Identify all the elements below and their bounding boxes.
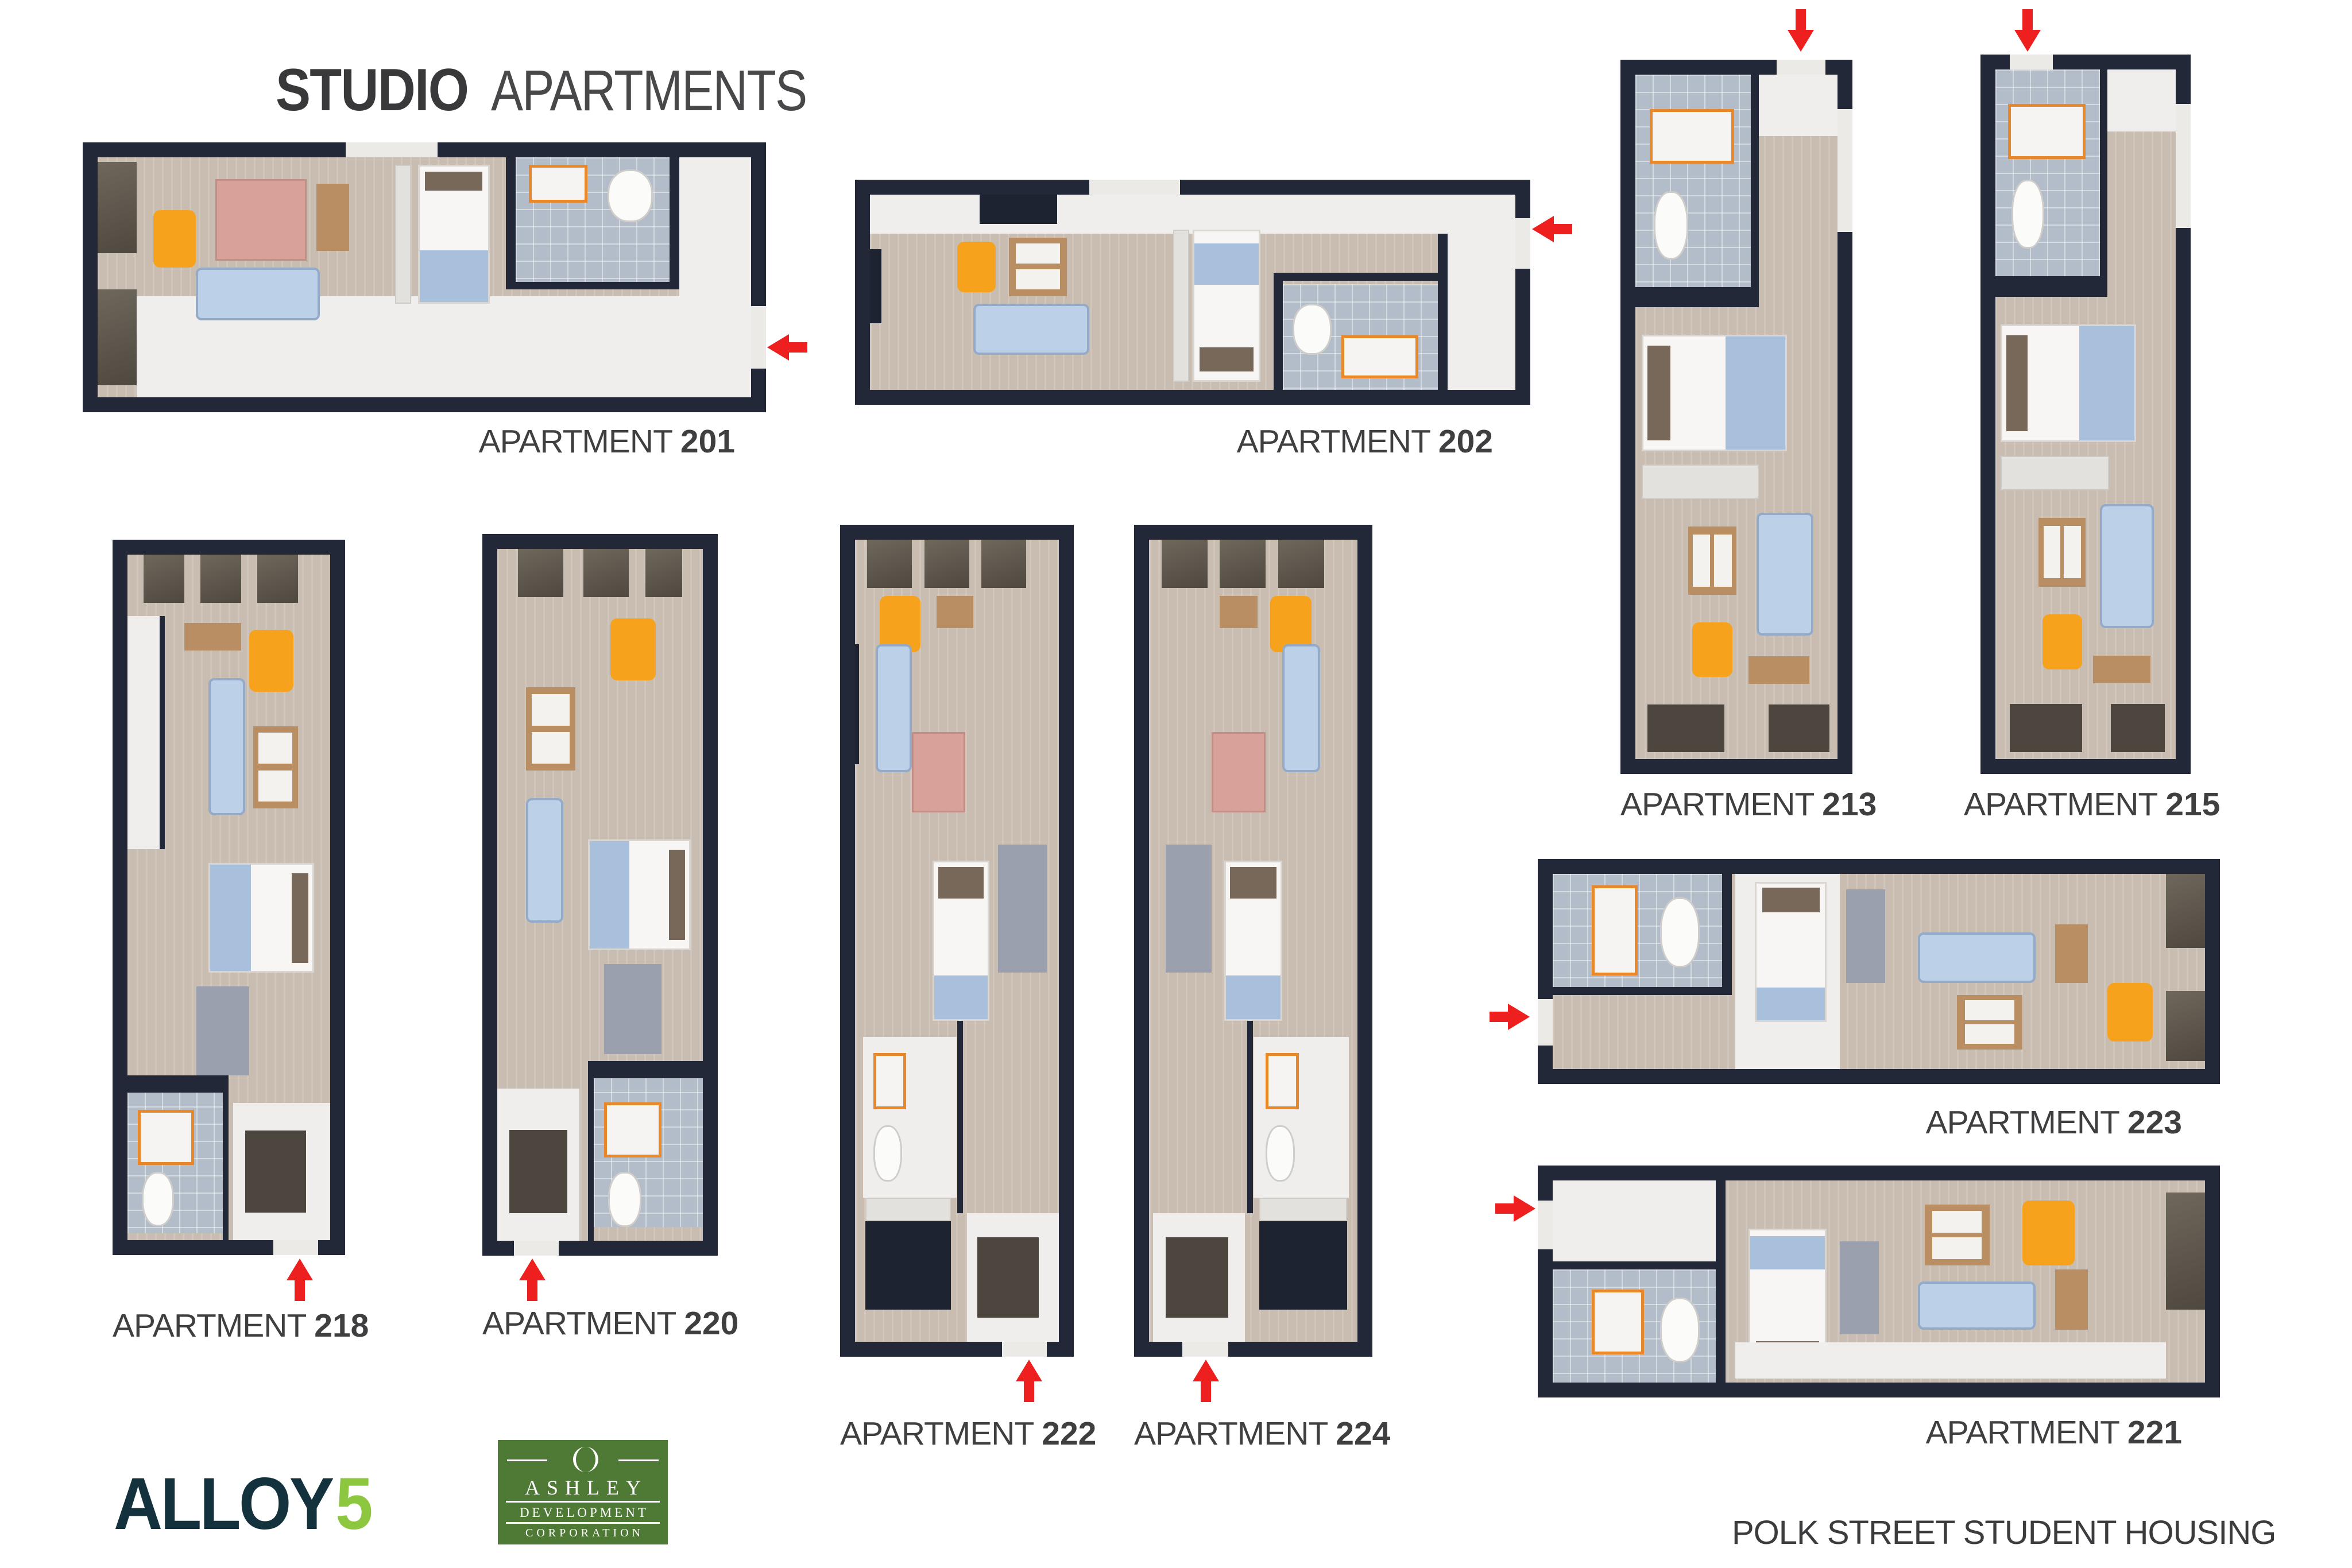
lounge-chair	[2107, 983, 2153, 1042]
blanket	[1757, 988, 1825, 1020]
sofa	[876, 644, 912, 773]
table-plate	[1965, 1000, 2014, 1020]
ashley-logo-subtitle: DEVELOPMENT	[498, 1505, 668, 1520]
apartment-label-prefix: APARTMENT	[1237, 423, 1430, 460]
kitchen-cabinets	[1259, 1221, 1347, 1310]
bathtub	[2008, 104, 2086, 159]
entry-arrow-213	[1788, 9, 1814, 52]
lounge-chair	[249, 630, 294, 691]
sofa	[2100, 504, 2154, 628]
entry-corridor-floor	[1448, 195, 1515, 390]
entry-arrow-202	[1532, 216, 1573, 242]
pillow	[938, 867, 983, 899]
kitchen-counter	[2001, 456, 2109, 490]
white-floor	[127, 616, 160, 849]
entry-door-gap	[1515, 218, 1530, 269]
apartment-label-223: APARTMENT223	[1837, 1104, 2182, 1141]
table-plate	[1016, 269, 1060, 289]
interior-wall	[588, 1061, 594, 1241]
rug	[977, 1237, 1039, 1318]
blanket	[1726, 336, 1785, 450]
title-studio: STUDIO	[276, 56, 468, 125]
interior-wall	[506, 157, 516, 289]
bed	[1193, 230, 1260, 382]
bed	[2001, 324, 2136, 442]
interior-wall	[1751, 75, 1759, 307]
arrow-head	[519, 1259, 546, 1280]
dining-table	[1212, 732, 1266, 812]
rug	[1166, 1237, 1228, 1318]
pillow	[1230, 867, 1276, 899]
page-title: STUDIO APARTMENTS	[276, 56, 867, 125]
bathroom-sink	[529, 165, 587, 203]
entry-door-gap	[2010, 55, 2053, 69]
apartment-label-prefix: APARTMENT	[479, 423, 672, 460]
toilet	[142, 1172, 174, 1227]
apartment-label-213: APARTMENT213	[1620, 785, 1852, 823]
side-table	[1220, 596, 1257, 628]
entry-arrow-215	[2014, 9, 2041, 52]
entry-door-gap	[1777, 60, 1825, 75]
arrow-shaft	[1796, 9, 1806, 31]
dining-table	[1688, 526, 1736, 595]
apartment-label-215: APARTMENT215	[1964, 785, 2205, 823]
interior-wall	[670, 157, 679, 289]
arrow-shaft	[1201, 1380, 1211, 1402]
toilet	[2011, 180, 2044, 249]
blanket	[1226, 975, 1281, 1020]
dining-table	[1009, 238, 1067, 296]
wardrobe	[1846, 889, 1885, 983]
sofa	[196, 268, 320, 320]
arrow-head	[287, 1259, 313, 1280]
table-plate	[1932, 1237, 1982, 1259]
apartment-label-218: APARTMENT218	[113, 1307, 345, 1345]
ashley-development-logo: ASHLEY DEVELOPMENT CORPORATION	[498, 1440, 668, 1544]
bathroom-sink	[1266, 1053, 1299, 1109]
toilet	[873, 1125, 902, 1182]
entry-floor	[1553, 1180, 1716, 1261]
desk	[316, 184, 349, 251]
interior-wall	[1716, 1180, 1726, 1383]
dining-table	[215, 179, 307, 261]
table-plate	[258, 733, 292, 764]
ashley-logo-title: ASHLEY	[498, 1476, 668, 1500]
toilet	[1293, 304, 1331, 354]
blanket	[1194, 243, 1259, 285]
arrow-shaft	[1553, 224, 1572, 234]
window-glazing	[1220, 540, 1266, 588]
entry-arrow-221	[1494, 1195, 1535, 1222]
blanket	[420, 250, 488, 302]
table-plate	[1714, 535, 1731, 587]
bed	[588, 839, 691, 950]
window-glazing	[98, 289, 137, 385]
bathroom-tile-floor	[1995, 69, 2100, 276]
kitchen-counter	[865, 1198, 951, 1222]
kitchen-counter	[1259, 1198, 1347, 1222]
interior-wall	[1274, 273, 1283, 390]
entry-door-gap	[1538, 999, 1553, 1046]
table-plate	[2064, 526, 2080, 578]
lounge-chair	[1270, 596, 1312, 652]
floorplan-apartment-221	[1538, 1166, 2220, 1397]
interior-wall	[1247, 1021, 1254, 1213]
blanket	[210, 865, 251, 971]
window-glazing	[257, 555, 298, 603]
interior-wall	[2100, 69, 2107, 297]
bed	[933, 861, 989, 1021]
interior-wall	[957, 1021, 964, 1213]
window-glazing	[924, 540, 969, 588]
pillow	[1200, 347, 1254, 371]
side-table	[2093, 656, 2150, 683]
skylight-panel	[980, 195, 1057, 224]
dining-table	[2038, 518, 2086, 587]
lounge-chair	[153, 210, 196, 268]
entry-arrow-218	[287, 1259, 313, 1301]
bathroom-sink	[1341, 335, 1419, 378]
toilet	[1660, 897, 1699, 967]
pillow	[425, 172, 482, 191]
side-table	[937, 596, 973, 628]
laurel-wreath-row	[498, 1445, 668, 1474]
floorplan-apartment-222	[840, 525, 1074, 1357]
apartment-number: 201	[680, 423, 735, 460]
wardrobe	[604, 964, 661, 1054]
window-glazing	[518, 549, 563, 597]
sofa	[526, 798, 563, 923]
pillow	[669, 850, 685, 940]
interior-wall	[1553, 987, 1722, 995]
blanket	[2079, 326, 2134, 440]
poster-canvas: STUDIO APARTMENTS APARTMENT201	[0, 0, 2352, 1568]
interior-wall	[1635, 287, 1751, 308]
sofa	[973, 304, 1089, 354]
toilet	[1266, 1125, 1295, 1182]
floorplan-apartment-202	[855, 180, 1530, 405]
kitchen-counter	[1642, 464, 1759, 499]
alloy-logo-number: 5	[335, 1463, 371, 1545]
floorplan-apartment-215	[1980, 55, 2191, 774]
tv-screen	[870, 249, 881, 323]
rug	[245, 1130, 306, 1213]
table-plate	[1965, 1024, 2014, 1044]
entry-arrow-220	[519, 1259, 546, 1301]
interior-wall	[223, 1075, 229, 1240]
entry-door-gap	[1538, 1201, 1553, 1249]
window-gap	[1089, 180, 1179, 195]
apartment-number: 222	[1042, 1415, 1096, 1452]
alloy-logo-text: ALLOY	[114, 1463, 332, 1545]
entry-door-gap	[751, 306, 766, 369]
arrow-shaft	[1490, 1012, 1509, 1022]
entry-arrow-222	[1016, 1360, 1042, 1402]
blanket	[1750, 1236, 1825, 1269]
window-glazing	[645, 549, 682, 597]
entry-door-gap	[273, 1240, 318, 1255]
apartment-label-prefix: APARTMENT	[1134, 1415, 1328, 1452]
bed-partition	[395, 165, 411, 304]
apartment-label-202: APARTMENT202	[1148, 423, 1493, 460]
floorplan-apartment-224	[1134, 525, 1372, 1357]
apartment-label-220: APARTMENT220	[482, 1304, 718, 1342]
arrow-shaft	[1495, 1203, 1515, 1214]
interior-wall	[1995, 276, 2100, 297]
bathtub	[1592, 885, 1638, 975]
blanket	[934, 975, 988, 1020]
pillow	[292, 873, 308, 962]
lounge-chair	[610, 618, 656, 680]
bathtub	[138, 1110, 195, 1165]
interior-wall	[506, 282, 670, 289]
dining-table	[1925, 1205, 1990, 1265]
sideboard	[2055, 1269, 2088, 1330]
toilet	[608, 1172, 641, 1227]
bathroom-sink	[1592, 1290, 1644, 1354]
apartment-number: 221	[2127, 1414, 2182, 1451]
side-table	[184, 623, 241, 651]
pillow	[1762, 888, 1820, 912]
table-plate	[1932, 1211, 1982, 1233]
floorplan-apartment-201	[83, 142, 766, 412]
apartment-label-224: APARTMENT224	[1134, 1415, 1372, 1453]
rug	[2111, 704, 2165, 752]
ashley-logo-subtitle2: CORPORATION	[498, 1527, 668, 1540]
floorplan-apartment-218	[113, 540, 345, 1255]
dining-table	[526, 687, 575, 771]
blanket	[590, 841, 629, 948]
interior-wall	[1553, 1261, 1716, 1269]
divider-line	[506, 1522, 660, 1524]
divider-line	[618, 1459, 659, 1461]
floorplan-apartment-223	[1538, 859, 2220, 1084]
sofa	[1282, 644, 1320, 773]
interior-wall	[1722, 874, 1732, 995]
lounge-chair	[957, 242, 996, 292]
bed	[208, 863, 314, 973]
rug	[2010, 704, 2082, 752]
apartment-label-prefix: APARTMENT	[1964, 786, 2157, 823]
apartment-label-prefix: APARTMENT	[1926, 1104, 2119, 1141]
arrow-head	[1788, 30, 1814, 52]
rug	[1647, 704, 1724, 752]
table-plate	[1693, 535, 1710, 587]
arrow-shaft	[527, 1279, 537, 1301]
window-glazing	[200, 555, 241, 603]
rug	[509, 1130, 567, 1213]
lounge-chair	[880, 596, 920, 652]
window-glazing	[867, 540, 912, 588]
white-floor	[1735, 1342, 2166, 1379]
apartment-label-prefix: APARTMENT	[1620, 786, 1814, 823]
entry-floor	[2107, 69, 2176, 131]
arrow-shaft	[788, 342, 807, 353]
window-glazing	[583, 549, 629, 597]
window-glazing	[2166, 991, 2205, 1061]
arrow-shaft	[1024, 1380, 1034, 1402]
pillow	[2006, 335, 2028, 431]
apartment-number: 213	[1822, 786, 1877, 823]
entry-door-gap	[1002, 1342, 1047, 1357]
entry-door-gap	[514, 1241, 559, 1256]
entry-arrow-201	[767, 334, 808, 361]
apartment-number: 224	[1336, 1415, 1390, 1452]
white-floor	[870, 195, 1490, 234]
apartment-label-222: APARTMENT222	[840, 1415, 1074, 1453]
table-plate	[258, 771, 292, 802]
arrow-head	[2014, 30, 2041, 52]
arrow-head	[767, 334, 789, 361]
bathtub	[1650, 109, 1735, 164]
bathroom-tile-floor	[1635, 75, 1751, 287]
bed	[1755, 882, 1827, 1023]
kitchen-cabinets	[865, 1221, 951, 1310]
arrow-shaft	[295, 1279, 305, 1301]
bed-partition	[1173, 230, 1189, 382]
arrow-head	[1514, 1195, 1535, 1222]
window-glazing	[2166, 1193, 2205, 1310]
window-glazing	[1162, 540, 1208, 588]
window-gap	[2176, 104, 2191, 228]
apartment-label-201: APARTMENT201	[390, 423, 735, 460]
toilet	[1654, 191, 1688, 260]
table-plate	[532, 694, 569, 726]
window-glazing	[98, 162, 137, 253]
arrow-shaft	[2022, 9, 2033, 31]
window-glazing	[981, 540, 1026, 588]
entry-floor	[1759, 75, 1837, 136]
sofa	[1918, 932, 2035, 983]
wardrobe	[1166, 845, 1212, 973]
bed	[1224, 861, 1283, 1021]
apartment-number: 223	[2127, 1104, 2182, 1141]
interior-wall	[594, 1061, 703, 1078]
apartment-label-prefix: APARTMENT	[1926, 1414, 2119, 1451]
entry-arrow-224	[1193, 1360, 1219, 1402]
wardrobe	[1840, 1241, 1879, 1334]
wardrobe	[196, 986, 249, 1075]
laurel-wreath-icon	[573, 1447, 598, 1472]
floorplan-apartment-220	[482, 534, 718, 1256]
interior-wall	[127, 1075, 223, 1093]
dining-table	[912, 732, 965, 812]
wardrobe	[998, 845, 1047, 973]
bed	[1642, 335, 1787, 451]
arrow-head	[1193, 1360, 1219, 1381]
apartment-label-prefix: APARTMENT	[482, 1305, 676, 1342]
sideboard	[2055, 924, 2088, 983]
lounge-chair	[2042, 614, 2082, 669]
floorplan-apartment-213	[1620, 60, 1852, 774]
toilet	[608, 169, 653, 222]
table-plate	[2044, 526, 2060, 578]
interior-wall	[160, 616, 165, 849]
window-gap	[1837, 109, 1852, 233]
toilet	[1660, 1298, 1699, 1362]
arrow-head	[1016, 1360, 1042, 1381]
tv-screen	[855, 644, 859, 765]
interior-wall	[1438, 234, 1448, 390]
apartment-number: 215	[2165, 786, 2220, 823]
interior-wall	[1274, 273, 1438, 281]
window-glazing	[1278, 540, 1324, 588]
dining-table	[253, 726, 298, 808]
alloy5-logo: ALLOY5	[114, 1462, 371, 1546]
dining-table	[1957, 995, 2022, 1050]
arrow-head	[1508, 1004, 1530, 1030]
entry-arrow-223	[1488, 1004, 1530, 1030]
lounge-chair	[1692, 622, 1732, 677]
window-glazing	[144, 555, 184, 603]
sofa	[1918, 1281, 2035, 1330]
sofa	[208, 678, 245, 815]
lounge-chair	[2022, 1201, 2075, 1265]
side-table	[1748, 656, 1809, 684]
bed	[418, 165, 490, 304]
entry-corridor-floor	[679, 157, 751, 296]
bathroom-sink	[873, 1053, 906, 1109]
arrow-head	[1532, 216, 1554, 242]
divider-line	[507, 1459, 547, 1461]
project-name: POLK STREET STUDENT HOUSING	[1732, 1513, 2276, 1552]
apartment-label-221: APARTMENT221	[1837, 1414, 2182, 1451]
rug	[1769, 704, 1829, 752]
table-plate	[1016, 243, 1060, 264]
apartment-number: 220	[684, 1305, 738, 1342]
title-apartments: APARTMENTS	[491, 58, 807, 124]
apartment-number: 202	[1438, 423, 1493, 460]
window-glazing	[2166, 874, 2205, 948]
pillow	[1647, 346, 1670, 440]
bathtub	[604, 1102, 661, 1157]
table-plate	[532, 732, 569, 764]
apartment-label-prefix: APARTMENT	[113, 1307, 306, 1344]
window-gap	[346, 142, 437, 157]
divider-line	[506, 1501, 660, 1503]
entry-door-gap	[1182, 1342, 1228, 1357]
apartment-label-prefix: APARTMENT	[840, 1415, 1034, 1452]
apartment-number: 218	[314, 1307, 369, 1344]
sofa	[1757, 513, 1813, 636]
